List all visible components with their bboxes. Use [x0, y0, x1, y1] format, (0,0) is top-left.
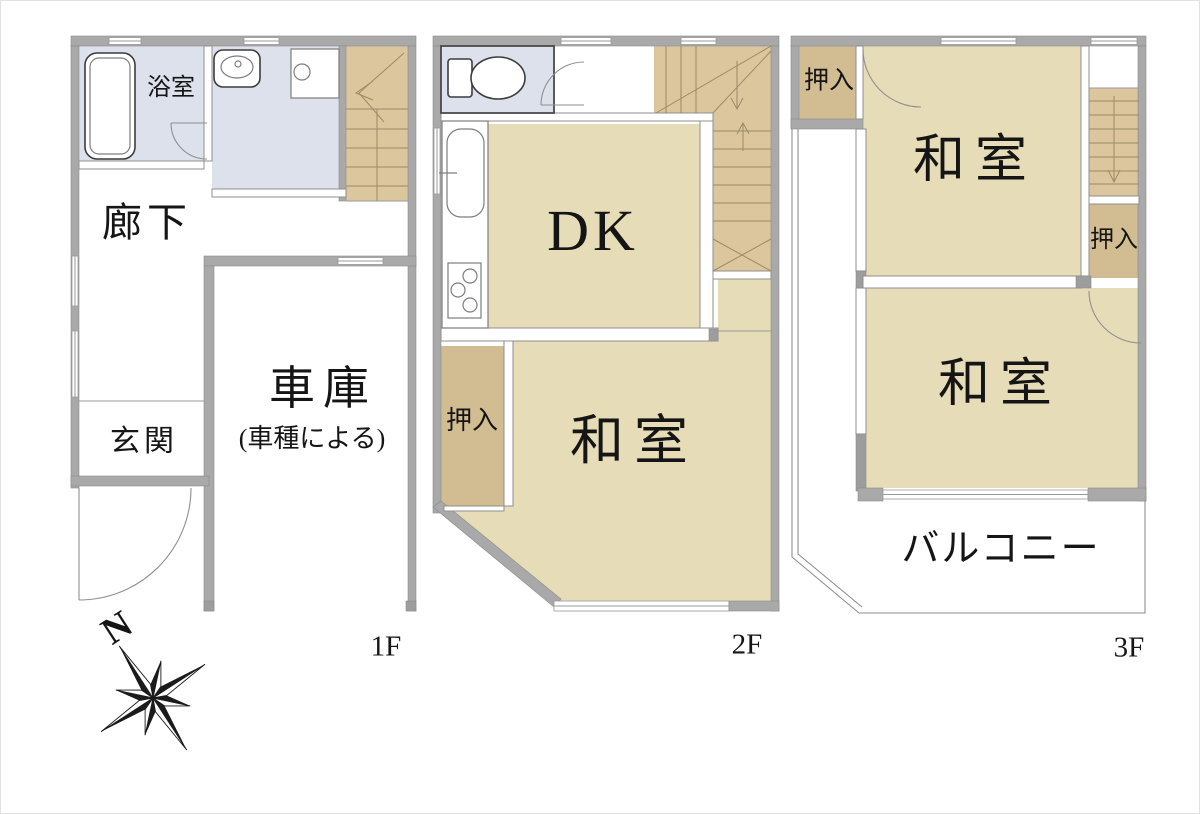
closet-3f-a-label: 押入	[804, 69, 854, 94]
closet-2f-label: 押入	[446, 408, 498, 434]
floor-2-plan	[433, 36, 779, 611]
washitsu-3f-b-label: 和室	[938, 359, 1062, 411]
balcony-label: バルコニー	[901, 530, 1100, 568]
floor-1-plan	[71, 36, 416, 611]
washitsu-3f-a-label: 和室	[913, 135, 1037, 187]
floor2-label: 2F	[732, 631, 763, 660]
garage-label: 車庫	[269, 366, 377, 412]
washitsu-2f-label: 和室	[570, 414, 698, 468]
dk-label: DK	[547, 202, 639, 260]
washing-machine-shape	[291, 49, 339, 98]
floorplan-image: 浴室 廊下 玄関 車庫 (車種による) 1F DK 押入 和室 2F 押入 和室…	[0, 0, 1200, 814]
entrance-label: 玄関	[110, 427, 178, 457]
bathroom-label: 浴室	[147, 76, 195, 100]
garage-note-label: (車種による)	[239, 426, 386, 452]
floor1-label: 1F	[371, 633, 402, 662]
closet-3f-b-label: 押入	[1090, 228, 1138, 252]
floor-3-plan	[791, 36, 1146, 613]
toilet-shape	[448, 57, 525, 99]
hallway-label: 廊下	[102, 203, 192, 243]
stove-shape	[448, 263, 481, 318]
vanity-sink-shape	[214, 50, 260, 87]
entrance-door-arc	[79, 488, 191, 600]
bathtub-shape	[85, 53, 135, 159]
floor3-label: 3F	[1114, 634, 1145, 663]
compass-rose-icon	[67, 612, 239, 784]
